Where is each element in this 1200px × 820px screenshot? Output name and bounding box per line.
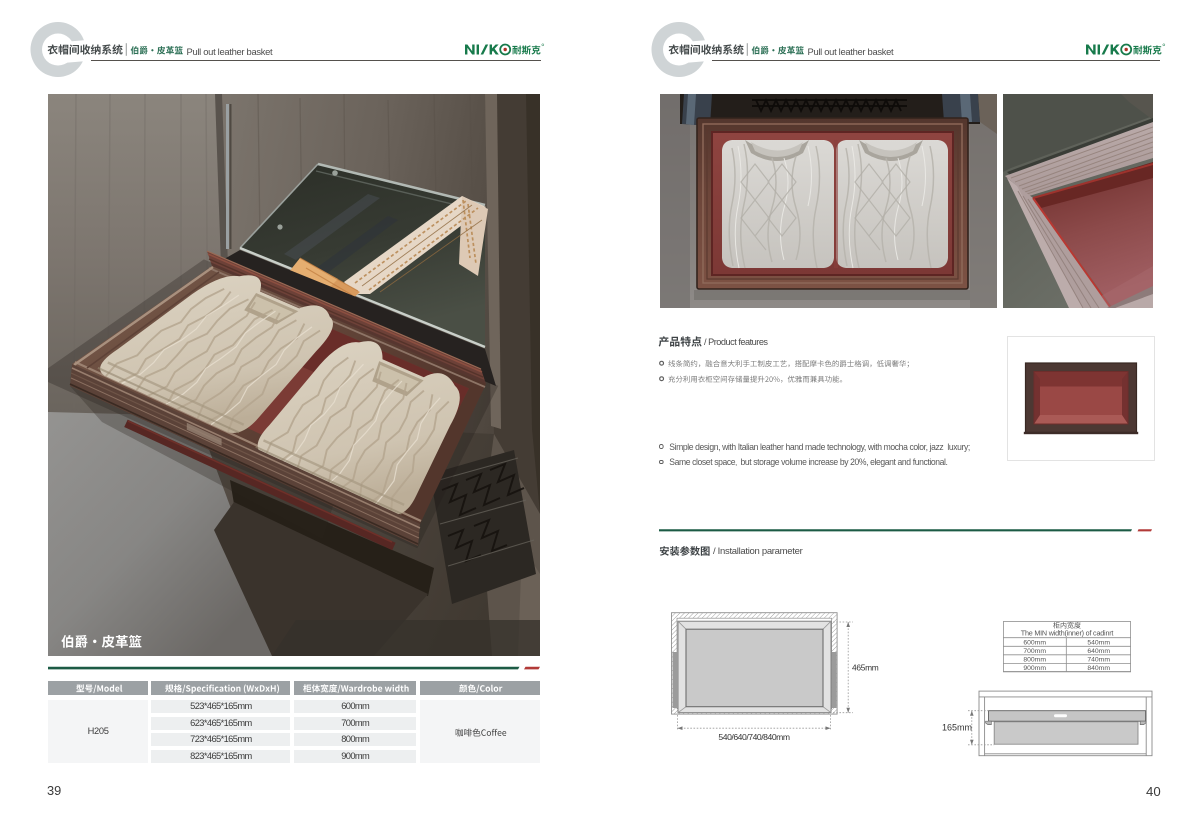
svg-text:900mm: 900mm: [1023, 665, 1046, 672]
svg-text:640mm: 640mm: [1087, 648, 1110, 655]
svg-text:800mm: 800mm: [1023, 656, 1046, 663]
svg-text:840mm: 840mm: [1087, 665, 1110, 672]
svg-text:465mm: 465mm: [852, 663, 879, 673]
svg-text:165mm: 165mm: [942, 723, 972, 733]
svg-text:600mm: 600mm: [1023, 639, 1046, 646]
svg-text:540/640/740/840mm: 540/640/740/840mm: [718, 732, 789, 742]
svg-text:740mm: 740mm: [1087, 656, 1110, 663]
svg-text:540mm: 540mm: [1087, 639, 1110, 646]
svg-text:700mm: 700mm: [1023, 648, 1046, 655]
svg-text:The MIN width(inner) of cadinr: The MIN width(inner) of cadinrt: [1021, 628, 1114, 637]
